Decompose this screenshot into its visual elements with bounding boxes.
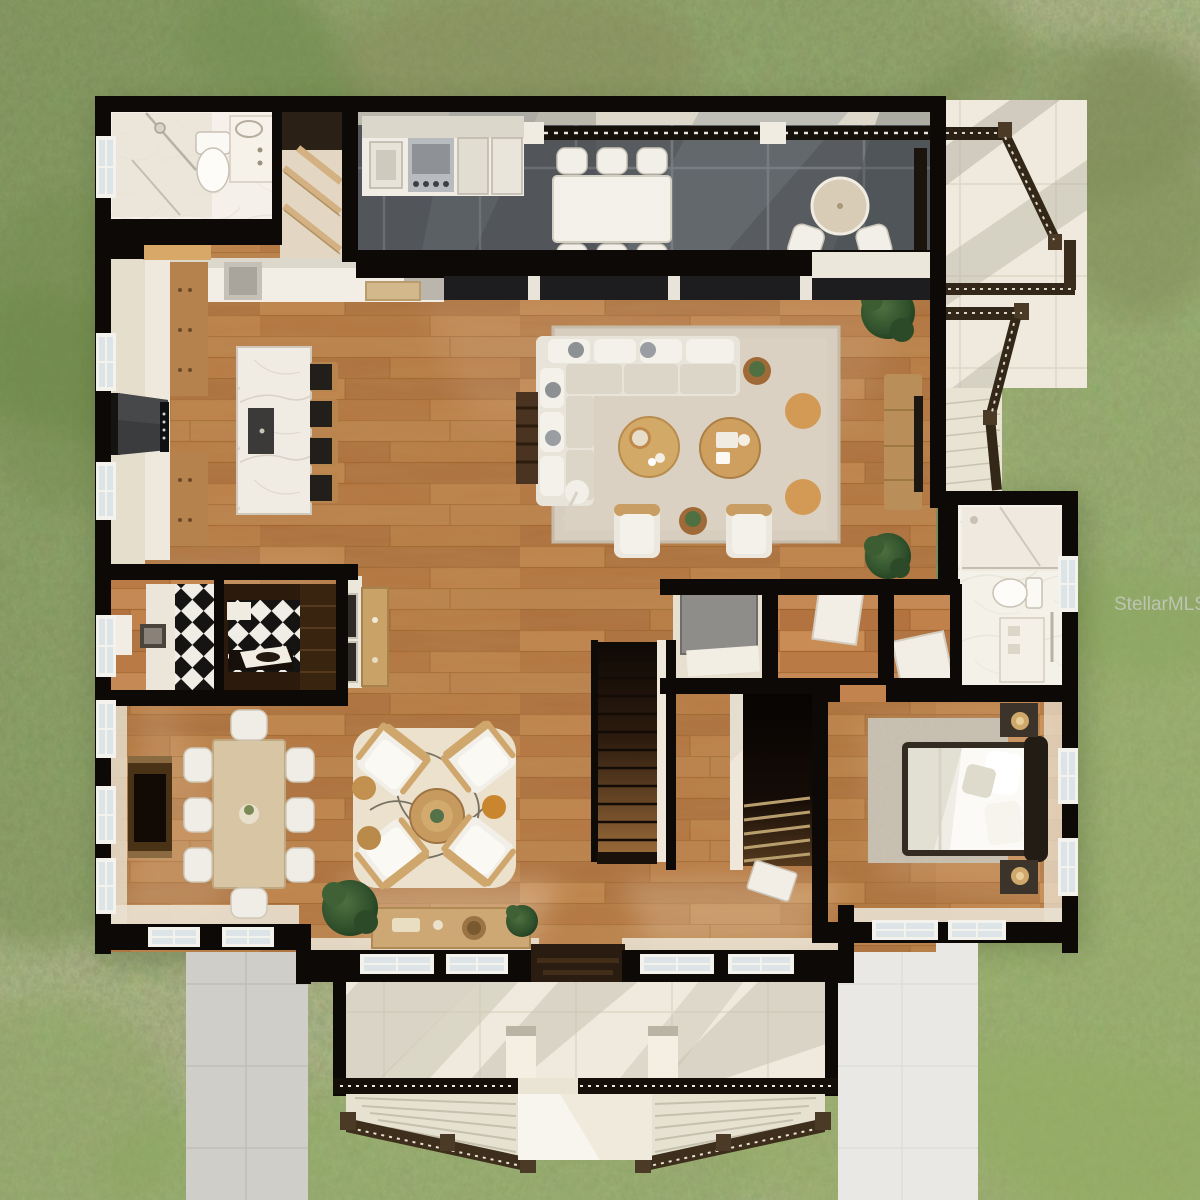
svg-text:StellarMLS: StellarMLS bbox=[1114, 594, 1200, 615]
